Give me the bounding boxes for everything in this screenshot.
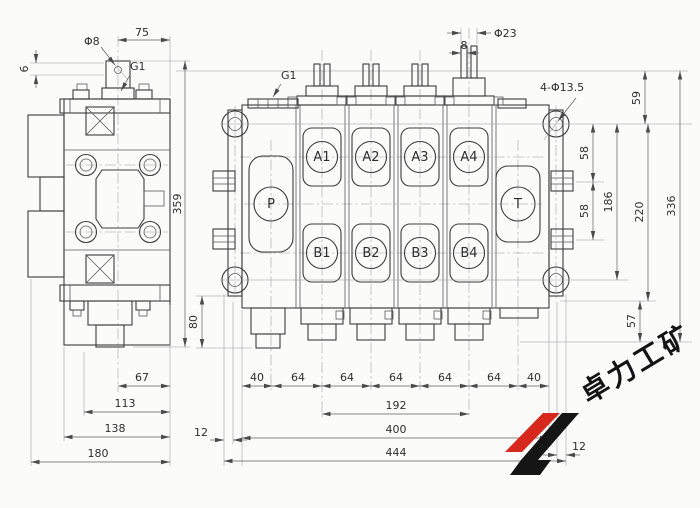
dim-chain-64-3: 64 [389, 371, 403, 384]
dim-chain-64-4: 64 [438, 371, 452, 384]
dim-chain-64-1: 64 [291, 371, 305, 384]
dim-chain-64-2: 64 [340, 371, 354, 384]
dim-186: 186 [602, 192, 615, 213]
right-bracket [543, 110, 573, 296]
port-p-label: P [267, 197, 275, 212]
port-b2-label: B2 [362, 246, 379, 261]
dim-8: 8 [461, 39, 468, 52]
dim-400: 400 [386, 423, 407, 436]
dim-58b: 58 [578, 204, 591, 218]
side-view [28, 36, 170, 392]
label-phi23: Φ23 [494, 27, 517, 40]
dim-12-left: 12 [194, 426, 208, 439]
dim-67: 67 [135, 371, 149, 384]
work-ports: A1 A2 A3 A4 B1 B2 B3 B4 [303, 128, 488, 282]
dim-59: 59 [630, 91, 643, 105]
dim-180: 180 [88, 447, 109, 460]
dim-444: 444 [386, 446, 407, 459]
g1-port-boss [248, 99, 298, 108]
label-g1-front: G1 [281, 69, 297, 82]
dim-chain-64-5: 64 [487, 371, 501, 384]
dim-6: 6 [18, 66, 31, 73]
bottom-caps [251, 308, 538, 348]
dim-80: 80 [187, 315, 200, 329]
dim-75: 75 [135, 26, 149, 39]
dim-chain-40r: 40 [527, 371, 541, 384]
valve-drawing: P T A1 A2 A3 A4 B1 B2 B3 B4 [0, 0, 700, 508]
label-g1-side: G1 [130, 60, 146, 73]
left-bracket [213, 110, 248, 296]
tie-rod-nut [551, 171, 573, 191]
dim-57: 57 [625, 314, 638, 328]
tie-rod-nut [213, 171, 235, 191]
watermark: 卓力工矿 [505, 318, 698, 475]
bottom-chain-dims: 40 64 64 64 64 64 40 [242, 371, 549, 386]
dim-359: 359 [171, 194, 184, 215]
section-joints [296, 105, 496, 308]
tie-rod-nut [213, 229, 235, 249]
port-a2-label: A2 [362, 150, 379, 165]
port-a1-label: A1 [313, 150, 330, 165]
watermark-logo-black-bar [510, 460, 551, 475]
dim-113: 113 [115, 397, 136, 410]
spool-caps [288, 46, 503, 105]
label-phi8: Φ8 [84, 35, 100, 48]
side-center-boss [96, 170, 144, 228]
side-bottom-cap [88, 301, 132, 325]
port-a4-label: A4 [460, 150, 477, 165]
port-b3-label: B3 [411, 246, 428, 261]
dim-chain-40l: 40 [250, 371, 264, 384]
port-b1-label: B1 [313, 246, 330, 261]
dim-336: 336 [665, 196, 678, 217]
port-b4-label: B4 [460, 246, 477, 261]
dim-138: 138 [105, 422, 126, 435]
label-4-phi13-5: 4-Φ13.5 [540, 81, 584, 94]
port-a3-label: A3 [411, 150, 428, 165]
tie-rod-nut [551, 229, 573, 249]
dim-58a: 58 [578, 146, 591, 160]
dim-192: 192 [386, 399, 407, 412]
drawing-page: P T A1 A2 A3 A4 B1 B2 B3 B4 [0, 0, 700, 508]
port-t-label: T [513, 197, 522, 212]
dim-12-right: 12 [572, 440, 586, 453]
dim-220: 220 [633, 202, 646, 223]
watermark-text: 卓力工矿 [575, 318, 698, 410]
